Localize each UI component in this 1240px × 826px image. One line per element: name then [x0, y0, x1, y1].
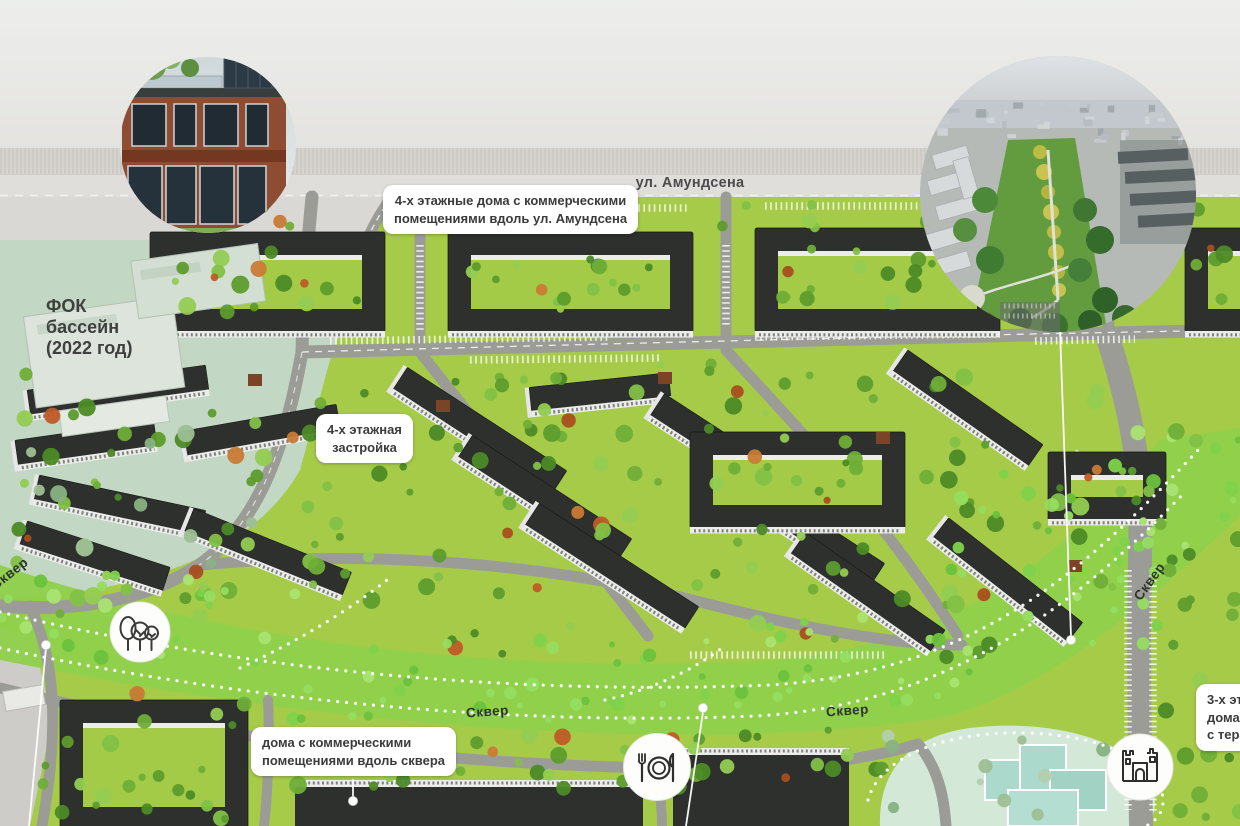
skver-label-center-2: Сквер — [826, 702, 870, 720]
building-small — [248, 374, 262, 386]
label-skver-commercial: дома с коммерческими помещениями вдоль с… — [251, 727, 456, 776]
label-line: 4-х этажная — [327, 421, 402, 439]
label-line: дома с коммерческими — [262, 734, 445, 752]
building-slab — [673, 748, 849, 826]
label-line: с тера — [1207, 726, 1240, 744]
building-small — [436, 400, 450, 412]
label-line: дома — [1207, 709, 1240, 727]
label-three-storey: 3-х эта дома с тера — [1196, 684, 1240, 751]
label-line: (2022 год) — [46, 338, 132, 359]
label-four-storey: 4-х этажная застройка — [316, 414, 413, 463]
label-line: 3-х эта — [1207, 691, 1240, 709]
building-courtyard-block — [448, 232, 693, 338]
playground-castle-icon — [1107, 734, 1173, 800]
label-line: бассейн — [46, 317, 132, 338]
trees-icon — [110, 602, 170, 662]
skver-label-center-1: Сквер — [466, 703, 510, 721]
building-small — [876, 432, 890, 444]
building-slab — [295, 780, 643, 826]
label-line: застройка — [327, 439, 402, 457]
building-small — [658, 372, 672, 384]
label-line: помещениями вдоль сквера — [262, 752, 445, 770]
restaurant-icon — [624, 734, 691, 801]
label-line: помещениями вдоль ул. Амундсена — [394, 210, 627, 228]
label-fok: ФОК бассейн (2022 год) — [46, 296, 132, 360]
masterplan-map — [0, 0, 1240, 826]
label-line: 4-х этажные дома с коммерческими — [394, 192, 627, 210]
building-courtyard-block — [1185, 228, 1240, 338]
label-amundsen-housing: 4-х этажные дома с коммерческими помещен… — [383, 185, 638, 234]
masterplan-photo: ул. Амундсена 4-х этажные дома с коммерч… — [0, 0, 1240, 826]
label-line: ФОК — [46, 296, 132, 317]
